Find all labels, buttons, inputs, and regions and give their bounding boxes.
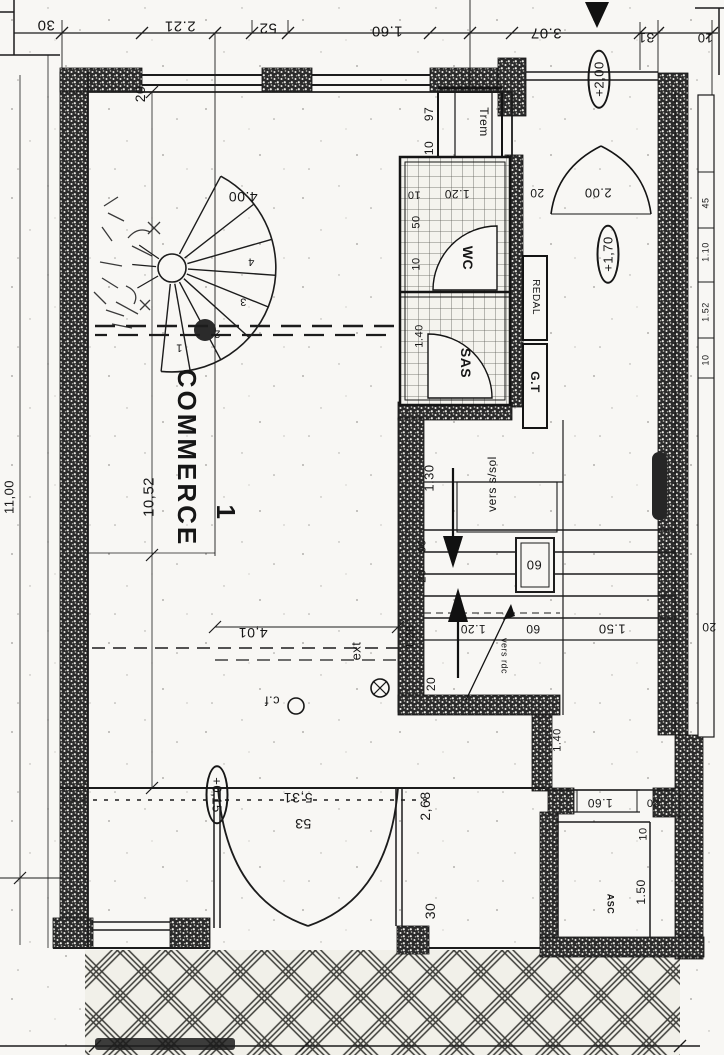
dim-53: 53 — [295, 817, 312, 831]
dim-150-stair: 1.50 — [598, 623, 625, 636]
dim-400-spiral: 4.00 — [228, 190, 257, 204]
dim-120-stair: 1.20 — [460, 623, 485, 635]
dim-531: 5,31 — [283, 791, 312, 805]
label-tremie: Trem — [478, 107, 490, 137]
tread-num-1: 1 — [176, 342, 183, 353]
dim-30-top: 30 — [37, 18, 55, 33]
tread-num-4: 4 — [248, 256, 255, 267]
dim-150-asc: 1.50 — [635, 879, 647, 904]
dim-160-asc: 1.60 — [587, 797, 612, 809]
dim-130-stair: 1.30 — [423, 464, 436, 491]
dim-140-sas: 1.40 — [415, 324, 426, 347]
dim-200-hall-door: 2.00 — [584, 187, 611, 200]
room-label-commerce: COMMERCE — [174, 369, 200, 548]
tread-num-3: 3 — [240, 296, 247, 307]
room-label-wc: WC — [461, 246, 475, 270]
dim-268: 2,68 — [418, 791, 432, 820]
dim-140-corridor: 1.40 — [553, 728, 564, 751]
label-gt: G.T — [529, 371, 541, 393]
dim-97-tremie: 97 — [423, 107, 435, 121]
dim-1100-left: 11,00 — [3, 480, 16, 514]
dim-307-top: 3.07 — [530, 26, 561, 41]
label-cf: c.f — [264, 695, 279, 708]
label-vers-rdc: vers rdc — [500, 638, 509, 674]
dim-401: 4,01 — [238, 626, 267, 640]
dim-10-top-right: 10 — [697, 32, 712, 45]
dim-1052-left: 10,52 — [142, 477, 157, 517]
dim-20-stair-bottom: 20 — [425, 677, 437, 691]
dim-10-rightwall: 10 — [702, 354, 711, 365]
dim-30-bottom: 30 — [423, 903, 437, 920]
dim-52-top: 52 — [259, 21, 277, 36]
dim-45-rightwall: 45 — [702, 197, 711, 208]
dim-20-hall-door: 20 — [530, 187, 544, 199]
dim-50-wc: 50 — [412, 215, 423, 228]
dim-90-stair: 90 — [418, 539, 429, 552]
dim-10-asc: 10 — [639, 827, 650, 840]
label-vers-ssol: vers s/sol — [486, 456, 498, 512]
dim-60-stair: 60 — [526, 623, 540, 635]
dim-128-stair: 1.28 — [406, 625, 417, 648]
dim-31-top: 31 — [638, 31, 655, 45]
dim-20-topleft: 20 — [133, 86, 147, 103]
dim-60-boxed: 60 — [526, 559, 541, 572]
dim-10-wc-side: 10 — [412, 257, 423, 270]
dim-110-rightwall: 1.10 — [702, 242, 711, 262]
elev-badge-200: +2,00 — [588, 49, 611, 108]
room-label-asc: ASC — [606, 894, 615, 915]
dim-152-rightwall: 1.52 — [702, 302, 711, 322]
room-label-commerce-number: 1 — [213, 505, 239, 520]
dim-10-tremie: 10 — [423, 141, 435, 155]
label-ext: ext — [350, 642, 363, 661]
annotation-layer: 302.21521.603.07311011,0010,52204.001234… — [0, 0, 724, 1055]
tread-num-2: 2 — [214, 328, 221, 339]
dim-10-wc-top: 10 — [407, 189, 420, 200]
floor-plan-scan: 302.21521.603.07311011,0010,52204.001234… — [0, 0, 724, 1055]
label-redal: REDAL — [530, 279, 540, 315]
dim-160-top: 1.60 — [371, 24, 402, 39]
dim-20-stair: 20 — [418, 569, 429, 582]
elev-badge-170: +1,70 — [597, 224, 620, 283]
elev-badge-015: +0,15 — [206, 765, 229, 824]
dim-20-asc: 20 — [646, 797, 659, 808]
room-label-sas: SAS — [459, 348, 473, 378]
dim-221-top: 2.21 — [164, 19, 195, 34]
dim-120-wc: 1.20 — [444, 188, 469, 200]
dim-20-right: 20 — [702, 621, 716, 633]
